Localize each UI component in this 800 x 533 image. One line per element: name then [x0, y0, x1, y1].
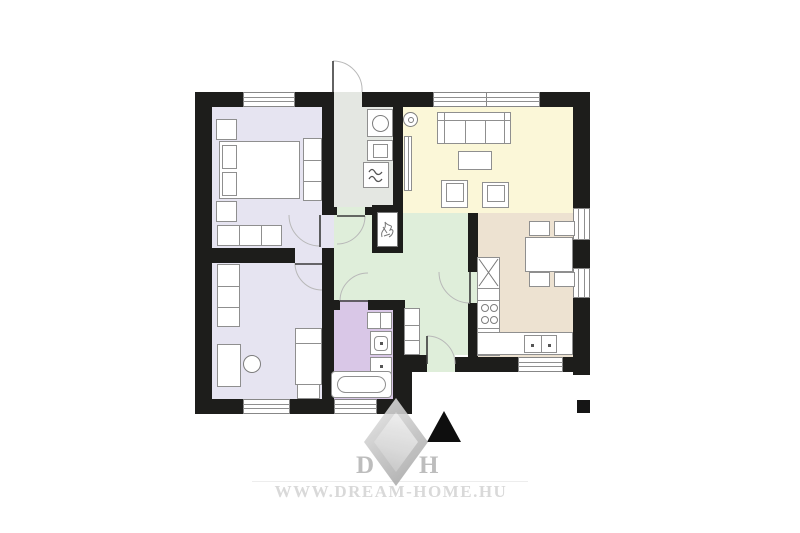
divider [261, 226, 262, 245]
single-bed [295, 328, 322, 385]
coffee-table [458, 151, 492, 170]
sofa-seat-divider [465, 120, 466, 143]
divider [218, 286, 239, 287]
dining-chair [554, 272, 575, 287]
sofa-back-line [438, 120, 510, 121]
fireplace-flame-icon [378, 213, 397, 246]
dining-chair [554, 221, 575, 236]
sofa-armrest [504, 113, 505, 143]
pillow-line [296, 343, 321, 344]
nightstand [216, 201, 237, 222]
fireplace [377, 212, 398, 247]
logo-letter-right: H [419, 453, 438, 478]
north-arrow-icon [427, 411, 461, 442]
logo-letter-left: D [356, 453, 374, 478]
watermark-url: WWW.DREAM-HOME.HU [250, 482, 532, 502]
door-arc-utility-hall [337, 216, 365, 244]
fridge-icon [478, 258, 499, 287]
bath-cabinet [367, 312, 392, 329]
wall-lamp [403, 112, 418, 127]
divider [380, 313, 381, 328]
door-arc-hall-kitchen [439, 272, 470, 303]
desk-chair [243, 355, 261, 373]
divider [218, 307, 239, 308]
kitchen-counter-bottom [477, 332, 573, 355]
sofa [437, 112, 511, 144]
sink-divider [541, 336, 542, 352]
sofa-seat-divider [485, 120, 486, 143]
door-arc-bedroom-2 [295, 263, 322, 290]
dining-chair [529, 272, 550, 287]
divider [478, 288, 499, 289]
divider [405, 325, 419, 326]
wall-lamp-center [408, 117, 414, 123]
divider [478, 328, 499, 329]
pillow [222, 172, 237, 196]
divider [405, 340, 419, 341]
stove-burner [490, 304, 498, 312]
shoe-cabinet [404, 308, 420, 355]
dresser [217, 225, 282, 246]
door-arc-bathroom [340, 273, 368, 301]
divider [478, 300, 499, 301]
divider [239, 226, 240, 245]
column-marker [577, 400, 590, 413]
door-arc-bedroom-1 [289, 215, 320, 246]
boiler-wave-icon [364, 163, 388, 187]
floor-plan-page: { "watermark": { "website": "WWW.DREAM-H… [0, 0, 800, 533]
dining-chair [529, 221, 550, 236]
armchair [482, 182, 509, 208]
faucet [380, 342, 383, 345]
bed-table [297, 384, 320, 399]
stove-burner [481, 316, 489, 324]
divider [408, 137, 409, 190]
sofa-armrest [444, 113, 445, 143]
bathtub [331, 371, 392, 398]
door-arc-utility-exterior [333, 61, 362, 92]
tv-board [404, 136, 412, 191]
double-bed [219, 141, 300, 199]
appliance [367, 140, 393, 161]
armchair-seat [487, 185, 505, 202]
logo-leaf [374, 412, 418, 472]
pillow [222, 145, 237, 169]
stove-burner [481, 304, 489, 312]
boiler [363, 162, 389, 188]
dining-table [525, 237, 573, 272]
divider [304, 160, 321, 161]
stove-burner [490, 316, 498, 324]
appliance-door [373, 144, 388, 158]
tub-basin [337, 376, 386, 393]
desk [217, 344, 241, 387]
kitchen-sink [524, 335, 557, 353]
nightstand [216, 119, 237, 140]
washing-machine [367, 109, 393, 137]
sink-drain [531, 344, 534, 347]
wardrobe [303, 138, 322, 201]
door-arc-entrance [427, 336, 455, 364]
divider [304, 181, 321, 182]
wardrobe [217, 264, 240, 327]
washer-drum [372, 115, 389, 132]
washbasin [370, 331, 392, 355]
flush [380, 365, 383, 368]
armchair-seat [446, 183, 464, 202]
armchair [441, 180, 468, 208]
sink-drain [548, 344, 551, 347]
